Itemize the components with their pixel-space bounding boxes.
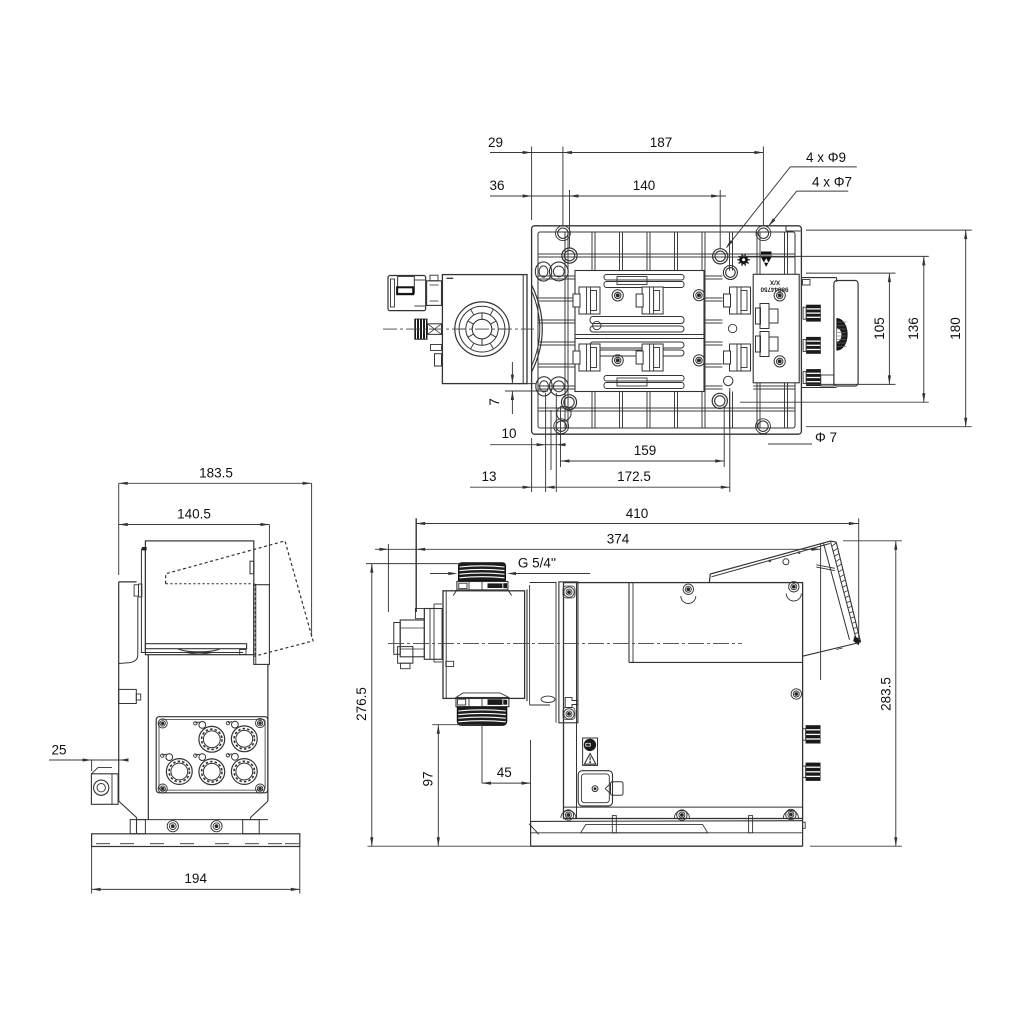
svg-text:13: 13 [481,469,496,484]
svg-text:140: 140 [633,178,656,193]
svg-text:36: 36 [489,178,504,193]
svg-text:4 x Φ9: 4 x Φ9 [806,150,846,165]
svg-text:136: 136 [906,317,921,340]
svg-text:7: 7 [487,398,502,406]
svg-text:374: 374 [607,532,630,547]
svg-text:194: 194 [184,871,207,886]
svg-text:Φ 7: Φ 7 [815,430,837,445]
svg-text:45: 45 [497,765,512,780]
svg-text:25: 25 [51,743,66,758]
svg-text:4 x Φ7: 4 x Φ7 [812,175,852,190]
svg-text:172.5: 172.5 [617,469,651,484]
svg-text:97: 97 [421,771,436,786]
svg-text:183.5: 183.5 [199,466,233,481]
svg-text:29: 29 [488,135,503,150]
svg-text:10: 10 [501,426,516,441]
svg-text:187: 187 [650,135,673,150]
svg-text:283.5: 283.5 [878,677,893,711]
svg-text:180: 180 [948,317,963,340]
svg-text:X/X: X/X [769,279,780,286]
svg-text:410: 410 [626,506,649,521]
svg-text:105: 105 [872,317,887,340]
svg-text:140.5: 140.5 [177,507,211,522]
svg-text:98844750: 98844750 [760,286,789,293]
svg-text:276.5: 276.5 [354,687,369,721]
svg-text:G 5/4'': G 5/4'' [518,556,556,571]
svg-text:159: 159 [634,443,657,458]
